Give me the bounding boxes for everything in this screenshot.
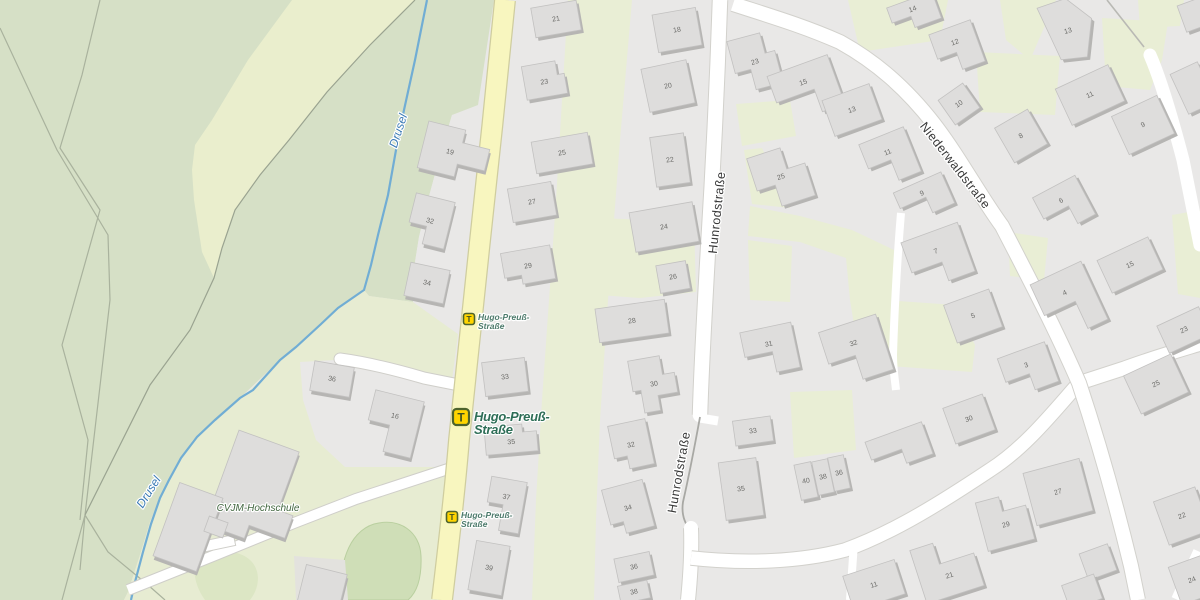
svg-text:36: 36	[327, 375, 336, 383]
svg-text:Straße: Straße	[474, 422, 513, 437]
svg-text:26: 26	[669, 273, 678, 281]
svg-text:T: T	[449, 512, 455, 522]
svg-text:23: 23	[540, 78, 549, 86]
svg-text:22: 22	[666, 156, 675, 164]
svg-text:Straße: Straße	[478, 321, 505, 331]
svg-text:29: 29	[524, 262, 533, 270]
svg-text:28: 28	[628, 317, 637, 325]
svg-text:39: 39	[484, 564, 493, 572]
svg-text:30: 30	[650, 380, 659, 388]
svg-text:21: 21	[552, 15, 561, 23]
svg-text:33: 33	[749, 427, 758, 435]
svg-text:Straße: Straße	[461, 519, 488, 529]
svg-text:24: 24	[660, 223, 669, 231]
svg-text:35: 35	[737, 485, 746, 493]
svg-text:18: 18	[673, 26, 682, 34]
svg-text:T: T	[457, 411, 465, 425]
svg-text:25: 25	[558, 149, 567, 157]
svg-text:CVJM-Hochschule: CVJM-Hochschule	[217, 503, 300, 514]
svg-text:35: 35	[507, 439, 515, 447]
svg-text:T: T	[466, 314, 472, 324]
svg-text:27: 27	[528, 198, 537, 206]
svg-text:33: 33	[501, 374, 510, 382]
svg-text:37: 37	[502, 493, 511, 501]
